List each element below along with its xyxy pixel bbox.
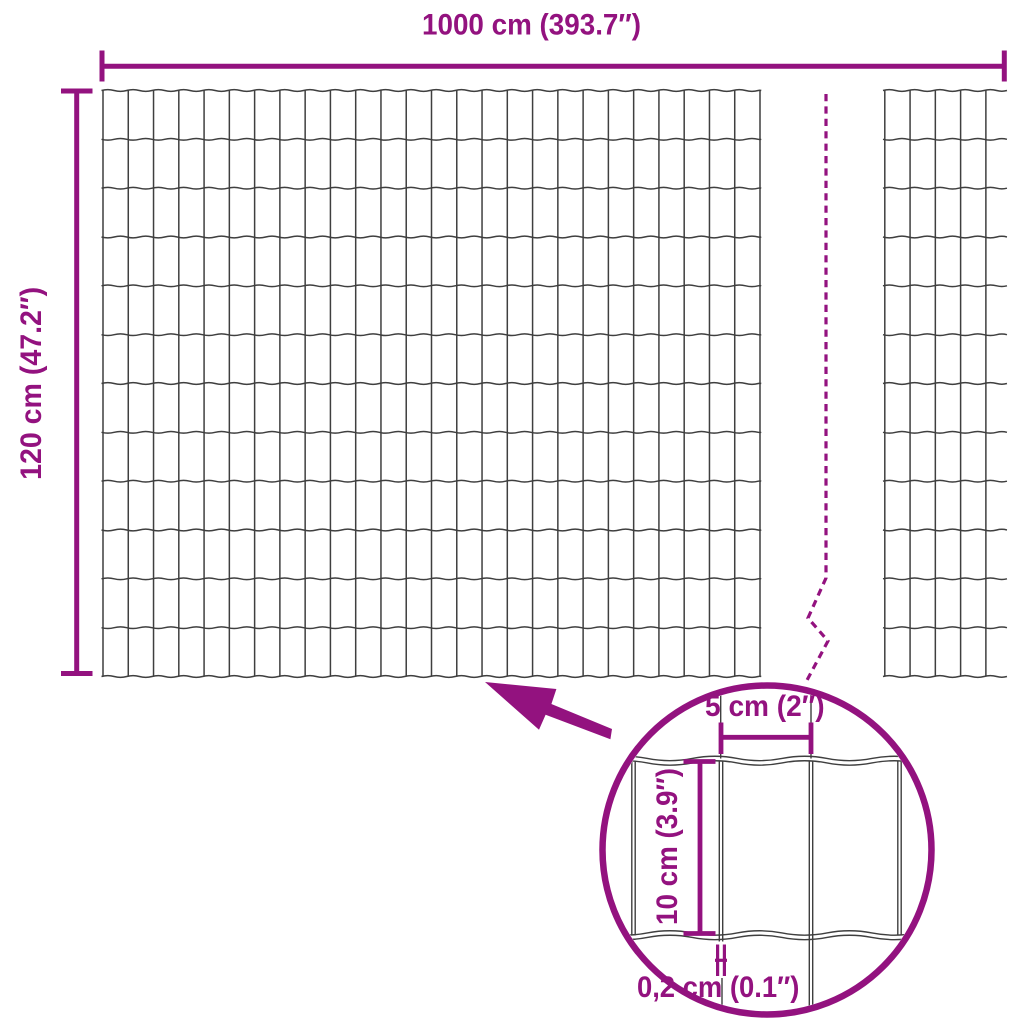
svg-text:1000 cm (393.7″): 1000 cm (393.7″) [422,8,641,41]
svg-text:10 cm (3.9″): 10 cm (3.9″) [651,768,684,925]
svg-text:5 cm (2″): 5 cm (2″) [705,690,825,723]
svg-text:120 cm (47.2″): 120 cm (47.2″) [15,287,48,480]
svg-text:0,2 cm (0.1″): 0,2 cm (0.1″) [637,971,800,1004]
